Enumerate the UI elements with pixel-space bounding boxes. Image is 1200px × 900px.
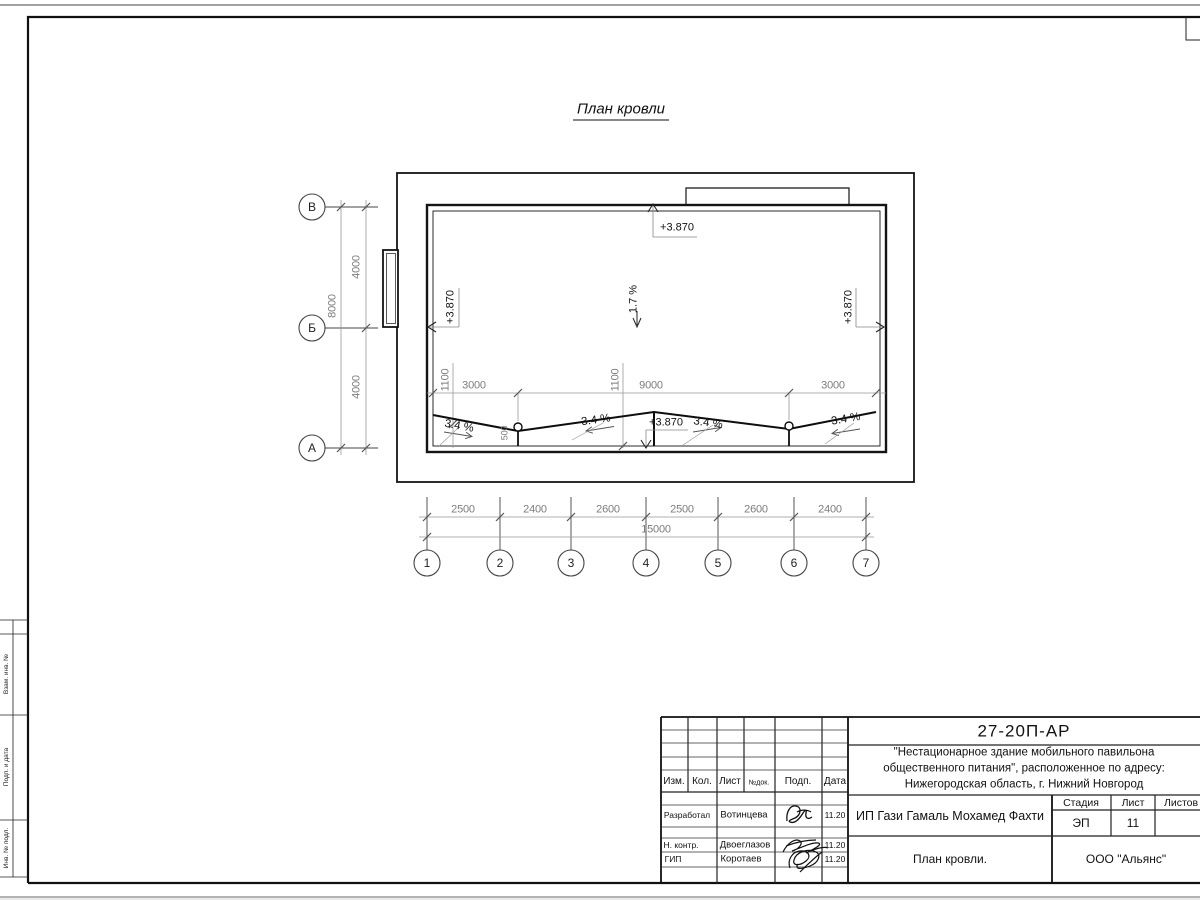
dim-4000-lower: 4000 <box>352 375 363 399</box>
col-ndok: №док. <box>749 780 770 787</box>
dim-2600-2: 2600 <box>744 505 768 516</box>
stage-value: ЭП <box>1072 817 1089 829</box>
dim-2500-1: 2500 <box>451 505 475 516</box>
elevation-top: +3.870 <box>660 223 694 234</box>
dim-9000: 9000 <box>639 381 663 392</box>
col-podp: Подп. <box>785 777 812 787</box>
axis-bubble-b: Б <box>308 322 316 334</box>
dim-8000: 8000 <box>328 294 339 318</box>
dim-4000-upper: 4000 <box>352 255 363 279</box>
building-outline <box>383 173 914 482</box>
axis-bubble-a: А <box>308 442 316 454</box>
signatures <box>783 806 828 872</box>
doc-number: 27-20П-АР <box>977 723 1070 740</box>
margin-label-podp: Подп. и дата <box>4 748 11 786</box>
organization-name: ООО "Альянс" <box>1086 853 1166 865</box>
sheet-value: 11 <box>1127 817 1139 829</box>
row-developer-role: Разработал <box>664 811 710 820</box>
axis-bubble-3: 3 <box>568 557 575 569</box>
sheet-title: План кровли. <box>913 853 987 865</box>
drawing-sheet: План кровли Взам. инв. № Подп. и дата Ин… <box>0 0 1200 900</box>
parapet-outer <box>427 205 886 452</box>
margin-label-inv: Инв. № подл. <box>4 828 11 869</box>
axis-bubble-6: 6 <box>791 557 798 569</box>
inner-dimensions <box>427 363 886 450</box>
elevation-left: +3.870 <box>446 290 457 324</box>
margin-label-vzam: Взам. инв. № <box>4 654 11 694</box>
row-developer-name: Вотинцева <box>720 810 767 820</box>
row-ncontrol-name: Двоеглазов <box>720 840 771 850</box>
dim-3000-left: 3000 <box>462 381 486 392</box>
project-description-line2: общественного питания", расположенное по… <box>883 763 1165 775</box>
stage-label: Стадия <box>1063 798 1099 809</box>
dim-2400-1: 2400 <box>523 505 547 516</box>
axis-bubble-2: 2 <box>497 557 504 569</box>
project-description-line1: "Нестационарное здание мобильного павиль… <box>894 747 1155 759</box>
axis-bubble-4: 4 <box>643 557 650 569</box>
row-ncontrol-date: 11.20 <box>825 841 846 850</box>
row-gip-date: 11.20 <box>825 855 846 864</box>
elevation-bottom: +3.870 <box>649 418 683 429</box>
dim-500: 500 <box>501 426 510 440</box>
project-description-line3: Нижегородская область, г. Нижний Новгоро… <box>905 779 1144 791</box>
row-gip-name: Коротаев <box>720 854 761 864</box>
dim-1100-left: 1100 <box>441 369 452 392</box>
sheets-label: Листов <box>1164 798 1198 809</box>
col-list: Лист <box>719 777 741 787</box>
axis-bubble-v: В <box>308 201 316 213</box>
col-izm: Изм. <box>663 777 684 787</box>
elevation-right: +3.870 <box>844 290 855 324</box>
axis-bubble-1: 1 <box>424 557 431 569</box>
dim-1100-mid: 1100 <box>611 369 622 392</box>
dim-15000: 15000 <box>641 525 671 536</box>
dim-2400-2: 2400 <box>818 505 842 516</box>
sheet-label: Лист <box>1122 798 1145 809</box>
row-developer-date: 11.20 <box>825 811 846 820</box>
roof-top-canopy <box>686 188 849 205</box>
col-data: Дата <box>824 777 846 787</box>
signature-developer <box>787 806 812 822</box>
axis-bubble-7: 7 <box>863 557 870 569</box>
dim-2500-2: 2500 <box>670 505 694 516</box>
drain-funnel <box>514 423 522 431</box>
row-ncontrol-role: Н. контр. <box>663 841 698 850</box>
client-name: ИП Гази Гамаль Мохамед Фахти <box>856 810 1044 823</box>
dim-3000-right: 3000 <box>821 381 845 392</box>
dim-2600-1: 2600 <box>596 505 620 516</box>
axis-bubble-5: 5 <box>715 557 722 569</box>
drawing-title: План кровли <box>573 102 669 121</box>
main-slope-label: 1.7 % <box>629 285 640 313</box>
drain-funnel <box>785 422 793 430</box>
col-kol: Кол. <box>692 777 712 787</box>
signature-gip <box>789 850 822 872</box>
frame-corner-box <box>1186 17 1200 40</box>
row-gip-role: ГИП <box>665 855 682 864</box>
parapet-inner <box>433 211 880 446</box>
